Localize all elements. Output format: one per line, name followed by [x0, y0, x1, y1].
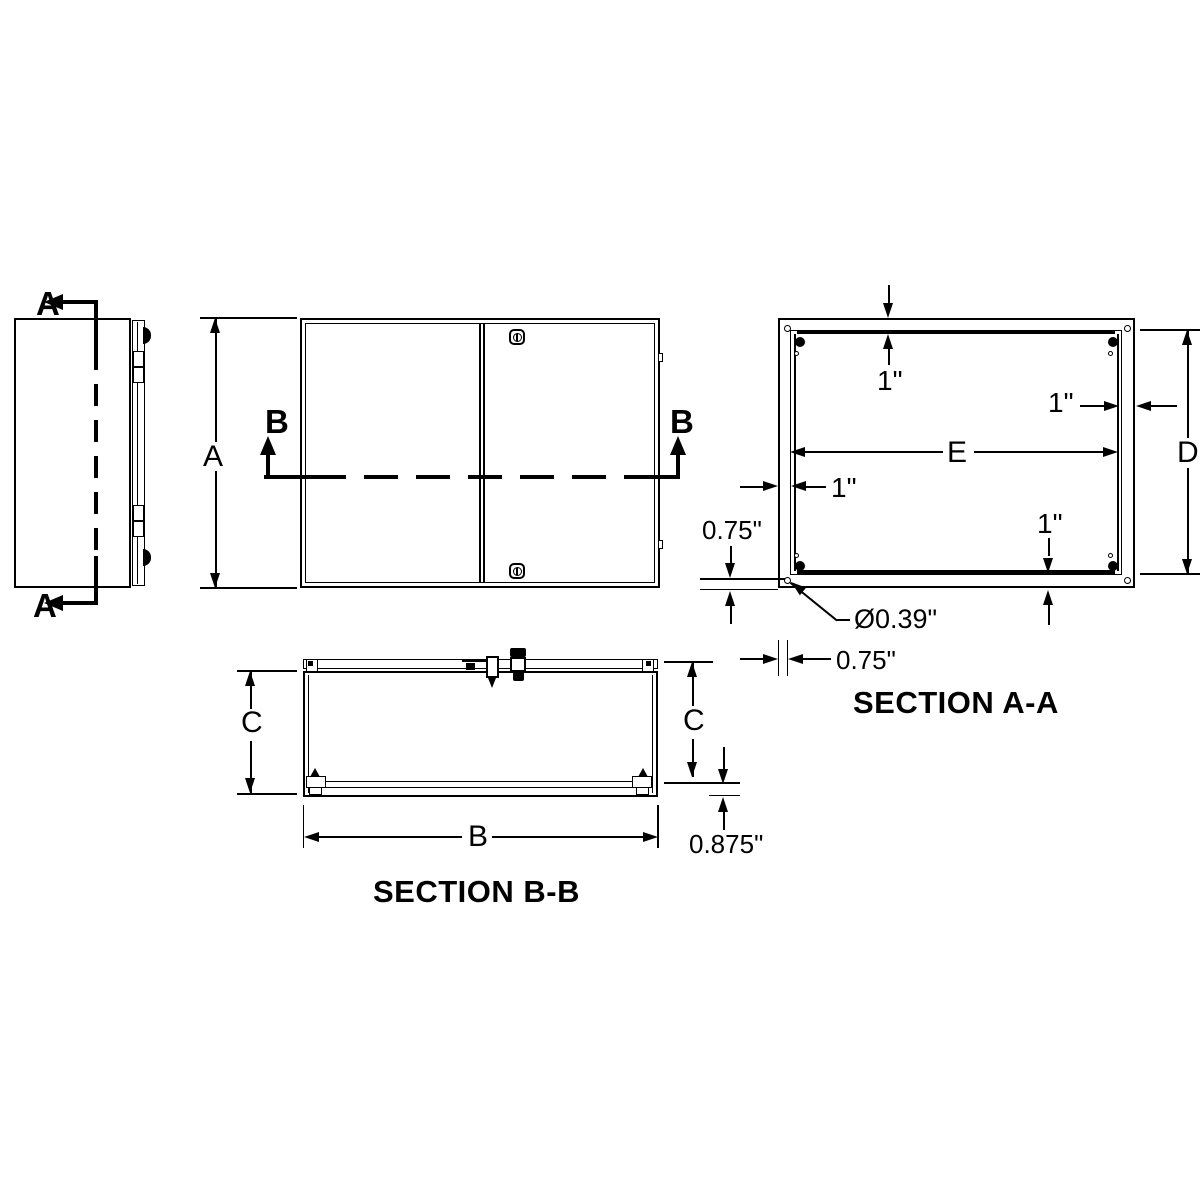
dim-label-hole-offset-h: 0.75" [836, 647, 896, 673]
latch-screw-top-slot [516, 334, 518, 341]
latch-pin-tip [488, 678, 496, 688]
section-aa-title: SECTION A-A [853, 687, 1059, 718]
dim-0875-stem-top [723, 747, 725, 769]
cut-bb-elbow-left [266, 453, 270, 479]
bb-door-end-left-pin [308, 661, 313, 666]
dim-d-arrow-top [1182, 330, 1192, 345]
cut-line-solid-bottom [94, 556, 98, 605]
latch-clamp-bottom [513, 672, 524, 681]
panel-stud-top-right [1108, 337, 1118, 347]
aa-075h-line-right [803, 658, 831, 660]
aa-right-dim-line [1080, 405, 1104, 407]
dim-d-line-upper [1187, 330, 1189, 438]
dim-0875-arrow-bottom [718, 797, 728, 812]
dim-label-hole-offset-v: 0.75" [702, 517, 762, 543]
aa-top-arrow-stem-outer [888, 285, 890, 305]
cut-label-a-top: A [36, 287, 60, 320]
dim-c-left-arrow-bottom [245, 778, 255, 793]
latch-block-small [466, 663, 475, 670]
cut-bb-elbow-right [676, 453, 680, 479]
dim-label-c-left: C [241, 708, 263, 738]
aa-right-dim-line-outer [1151, 405, 1177, 407]
dim-d-arrow-bottom [1182, 559, 1192, 574]
bb-panel-foot-left [309, 787, 322, 795]
aa-075v-stem-bottom [730, 606, 732, 624]
hinge-mark-bottom [658, 540, 663, 549]
aa-top-arrow-stem-inner [888, 349, 890, 365]
dim-c-right-arrow-top [687, 662, 697, 677]
dim-label-b: B [468, 822, 488, 852]
dim-e-arrow-right [1103, 447, 1118, 457]
dim-c-right-arrow-bottom [687, 762, 697, 777]
dim-b-ext-right [657, 805, 659, 848]
cut-elbow-top [62, 300, 98, 304]
enclosure-technical-drawing: A A A B B [0, 0, 1200, 1200]
dim-a-arrow-bottom [210, 573, 220, 588]
dim-b-arrow-right [643, 832, 658, 842]
cut-bb-solid-right [630, 475, 680, 479]
dim-e-arrow-left [790, 447, 805, 457]
flange-hole-top-right [1124, 325, 1131, 332]
panel-hole-bottom-right [1108, 553, 1113, 558]
hinge-bumper-bottom [143, 549, 151, 566]
hinge-bottom-knuckle [134, 520, 143, 522]
dim-c-left-ext-bottom [237, 793, 297, 795]
aa-075h-arrow-right [788, 654, 803, 664]
aa-bottom-arrow-inner [1043, 558, 1053, 573]
dim-a-line-upper [215, 318, 217, 442]
dim-e-line-right [974, 451, 1103, 453]
aa-075h-arrow-left [763, 654, 778, 664]
door-seam-line-left [479, 323, 481, 583]
hinge-mark-top [658, 353, 663, 362]
aa-075v-arrow-bottom [725, 591, 735, 606]
aa-top-arrow-outer [883, 303, 893, 318]
aa-right-arrow-inner [1104, 401, 1119, 411]
panel-hole-bottom-left [794, 553, 799, 558]
cut-label-b-left: B [265, 405, 289, 438]
aa-right-arrow-outer [1136, 401, 1151, 411]
cut-line-solid-top [94, 302, 98, 348]
dim-a-arrow-top [210, 318, 220, 333]
door-seam-line-right [483, 323, 485, 583]
aa-bottom-arrow-outer [1043, 590, 1053, 605]
cut-line-dashed [94, 348, 98, 556]
dim-c-left-arrow-top [245, 671, 255, 686]
latch-pin-housing [486, 656, 499, 678]
dim-label-gap-right: 1" [1048, 389, 1074, 417]
hole-leader-tail [837, 619, 850, 621]
cut-elbow-bottom [62, 601, 98, 605]
dim-label-d: D [1177, 438, 1199, 468]
aa-075v-ext-edge [700, 589, 778, 591]
dim-label-a: A [203, 442, 223, 472]
dim-label-gap-bottom: 1" [1037, 510, 1063, 538]
bb-body-outline [303, 671, 658, 797]
cut-bb-dashed [312, 475, 630, 479]
dim-0875-arrow-top [718, 769, 728, 784]
dim-0875-stem-bottom [723, 812, 725, 830]
dim-label-hole-diameter: Ø0.39" [854, 606, 937, 633]
back-panel-top-flange [797, 330, 1115, 334]
dim-a-line-lower [215, 471, 217, 588]
dim-b-line-left [319, 836, 462, 838]
latch-clamp-body [510, 657, 526, 672]
aa-top-arrow-inner [883, 334, 893, 349]
latch-screw-bottom-slot [516, 568, 518, 575]
dim-e-line-left [805, 451, 943, 453]
aa-left-arrow-inner [791, 481, 806, 491]
aa-bottom-arrow-stem-inner [1048, 538, 1050, 556]
bb-panel-bar [316, 781, 642, 788]
flange-hole-bottom-right [1124, 577, 1131, 584]
back-panel-bottom-flange [797, 570, 1115, 574]
aa-075v-ext-hole [700, 578, 785, 580]
panel-hole-top-right [1108, 351, 1113, 356]
aa-075v-arrow-top [725, 563, 735, 578]
hinge-top-knuckle [134, 366, 143, 368]
aa-left-arrow-outer [763, 481, 778, 491]
dim-label-c-right: C [683, 706, 705, 736]
dim-label-e: E [947, 438, 967, 468]
panel-hole-top-left [794, 351, 799, 356]
section-bb-title: SECTION B-B [373, 876, 580, 907]
bb-body-inner-right [652, 675, 653, 793]
dim-b-arrow-left [304, 832, 319, 842]
aa-left-dim-line-outer [740, 486, 764, 488]
dim-b-ext-left [303, 805, 305, 848]
dim-label-gap-left: 1" [831, 474, 857, 502]
bb-door-end-right-pin [646, 661, 651, 666]
enclosure-body-outline [14, 318, 131, 588]
dim-b-line-right [492, 836, 643, 838]
panel-stud-top-left [795, 337, 805, 347]
aa-075h-line-left [740, 658, 764, 660]
panel-stud-bottom-left [795, 561, 805, 571]
aa-left-dim-line-inner [806, 486, 826, 488]
cut-bb-solid-left [264, 475, 312, 479]
dim-label-gap-top: 1" [877, 367, 903, 395]
dim-c-right-ext-bottom [664, 782, 740, 784]
hinge-bumper-top [143, 327, 151, 344]
cut-label-b-right: B [670, 405, 694, 438]
dim-label-panel-standoff: 0.875" [689, 831, 763, 857]
aa-075v-stem-top [730, 546, 732, 563]
aa-bottom-arrow-stem-outer [1048, 605, 1050, 625]
dim-0875-ext-bottom [709, 795, 740, 797]
latch-clamp-top [510, 648, 526, 657]
cut-label-a-bottom: A [33, 589, 57, 622]
bb-panel-foot-right [636, 787, 649, 795]
panel-stud-bottom-right [1108, 561, 1118, 571]
